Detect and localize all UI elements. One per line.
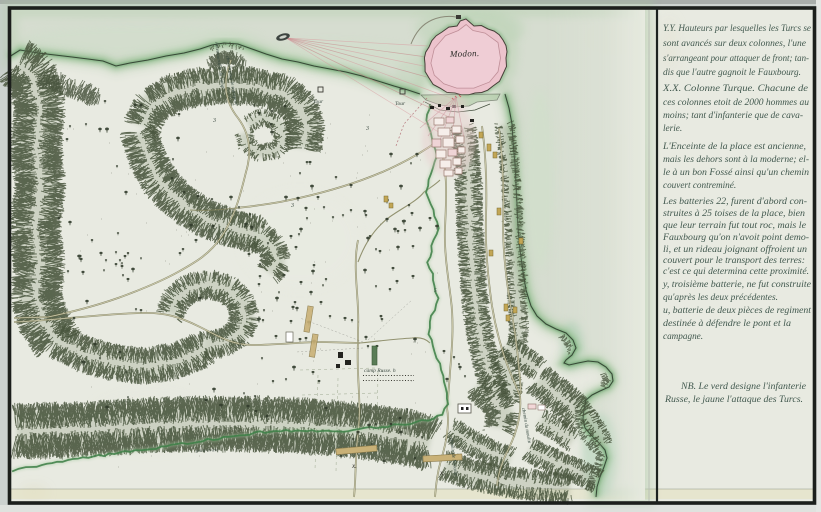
svg-text:dis que l'autre gagnoit le Fau: dis que l'autre gagnoit le Fauxbourg. bbox=[663, 67, 801, 77]
svg-text:sont avancés sur deux colonnes: sont avancés sur deux colonnes, l'une bbox=[663, 38, 806, 48]
svg-text:que leur terrain fut tout roc,: que leur terrain fut tout roc, mais le bbox=[663, 220, 806, 230]
svg-text:lerie.: lerie. bbox=[663, 123, 682, 133]
svg-text:camp Russe. h: camp Russe. h bbox=[364, 368, 396, 374]
svg-text:3: 3 bbox=[290, 203, 294, 209]
svg-text:3: 3 bbox=[237, 342, 241, 348]
svg-text:Tour: Tour bbox=[313, 99, 324, 105]
svg-text:Tour: Tour bbox=[395, 101, 406, 107]
svg-text:Les batteries 22, furent d'abo: Les batteries 22, furent d'abord con- bbox=[662, 196, 807, 206]
svg-text:c'est ce qui determina cette p: c'est ce qui determina cette proximité. bbox=[663, 266, 809, 276]
svg-text:campagne.: campagne. bbox=[663, 331, 703, 341]
svg-text:destinée à défendre le pont et: destinée à défendre le pont et la bbox=[663, 318, 791, 328]
svg-text:couvert contreminé.: couvert contreminé. bbox=[663, 180, 736, 190]
svg-text:5: 5 bbox=[434, 288, 437, 294]
svg-text:3: 3 bbox=[365, 126, 369, 132]
svg-text:x.: x. bbox=[439, 469, 445, 477]
svg-text:3: 3 bbox=[212, 118, 216, 124]
svg-text:X.X. Colonne Turque. Chacune d: X.X. Colonne Turque. Chacune de bbox=[662, 83, 808, 93]
svg-text:Fauxbourg qu'on n'avoit point: Fauxbourg qu'on n'avoit point demo- bbox=[662, 232, 809, 242]
svg-text:u, batterie de deux pièces de: u, batterie de deux pièces de regiment bbox=[663, 305, 811, 315]
svg-text:L'Enceinte de la place est anc: L'Enceinte de la place est ancienne, bbox=[662, 141, 806, 151]
svg-text:Y.Y. Hauteurs par lesquelles l: Y.Y. Hauteurs par lesquelles les Turcs s… bbox=[663, 23, 811, 33]
svg-text:mais les dehors sont à la mode: mais les dehors sont à la moderne; el- bbox=[663, 154, 809, 164]
svg-text:y, troisième batterie, ne fut: y, troisième batterie, ne fut construite bbox=[662, 279, 811, 289]
svg-text:le à un bon Fossé ainsi qu'un: le à un bon Fossé ainsi qu'un chemin bbox=[663, 167, 809, 177]
svg-text:moins; tant d'infanterie que d: moins; tant d'infanterie que de cava- bbox=[663, 110, 803, 120]
svg-text:ces colonnes etoit de 2000 hom: ces colonnes etoit de 2000 hommes au bbox=[663, 97, 809, 107]
svg-text:qu'après les deux précédentes.: qu'après les deux précédentes. bbox=[663, 292, 778, 302]
svg-text:s'arrangeant pour attaquer de: s'arrangeant pour attaquer de front; tan… bbox=[663, 53, 809, 63]
svg-text:Modon.: Modon. bbox=[449, 48, 480, 59]
svg-text:couvert pour le transport des: couvert pour le transport des terres: bbox=[663, 255, 805, 265]
svg-text:Russe, le jaune l'attaque des: Russe, le jaune l'attaque des Turcs. bbox=[664, 394, 803, 404]
svg-text:x.: x. bbox=[351, 462, 357, 470]
svg-text:petite riviere: petite riviere bbox=[195, 447, 219, 453]
svg-text:struites à 25 toises de la pla: struites à 25 toises de la place, bien bbox=[663, 208, 805, 218]
svg-text:li, et un rideau joignant offr: li, et un rideau joignant offroient un bbox=[663, 244, 807, 254]
svg-text:NB. Le verd designe l'infanter: NB. Le verd designe l'infanterie bbox=[680, 381, 806, 391]
